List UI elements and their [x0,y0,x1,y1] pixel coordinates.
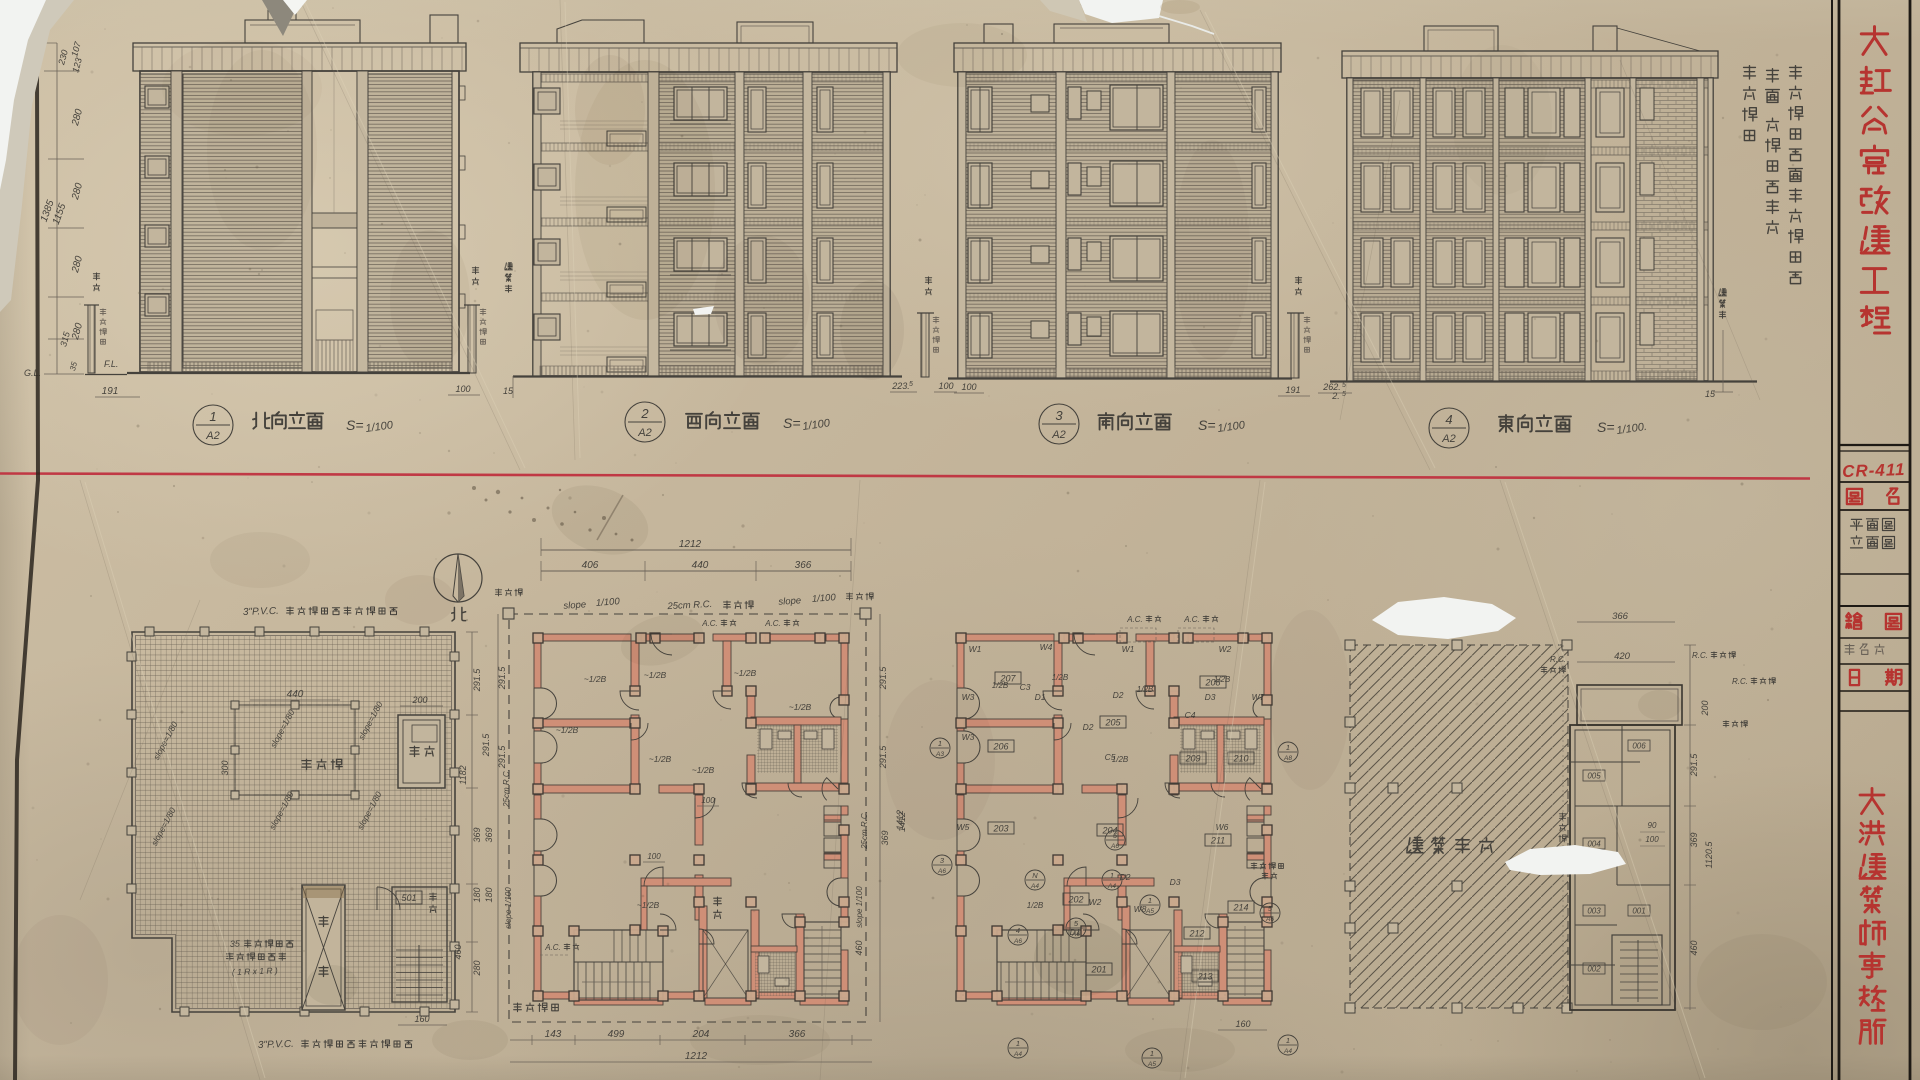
svg-text:003: 003 [1587,907,1601,916]
svg-text:369: 369 [484,827,494,842]
svg-text:A2: A2 [1051,429,1065,441]
svg-text:C4: C4 [1185,710,1196,720]
svg-text:315: 315 [58,330,72,348]
svg-text:A6: A6 [1265,916,1274,923]
svg-text:160: 160 [414,1014,429,1024]
svg-text:CR-411: CR-411 [1842,460,1906,481]
svg-text:35: 35 [230,938,242,949]
svg-text:W6: W6 [1216,822,1229,832]
svg-text:100: 100 [938,381,953,391]
svg-text:100: 100 [455,384,470,394]
svg-text:420: 420 [1614,651,1631,662]
svg-text:002: 002 [1587,965,1601,974]
svg-text:D3: D3 [1205,692,1216,702]
svg-text:369: 369 [1689,832,1699,847]
svg-text:160: 160 [1235,1019,1250,1029]
svg-text:1/2B: 1/2B [1027,901,1044,910]
svg-text:25cm R.C.: 25cm R.C. [502,769,511,808]
svg-text:1/2B: 1/2B [992,681,1009,690]
svg-text:214: 214 [1232,903,1248,913]
svg-text:N: N [1032,871,1038,880]
svg-text:A.C.: A.C. [764,619,781,628]
svg-text:406: 406 [582,560,599,571]
svg-text:D3: D3 [1170,877,1181,887]
svg-text:~1/2B: ~1/2B [649,754,672,764]
svg-text:006: 006 [1632,742,1646,751]
svg-text:210: 210 [1232,754,1248,764]
svg-text:90: 90 [1648,821,1657,830]
svg-text:4: 4 [1016,926,1020,935]
svg-text:499: 499 [608,1029,625,1040]
svg-text:3: 3 [1055,408,1063,423]
svg-text:440: 440 [287,689,304,700]
svg-text:A6: A6 [937,868,946,875]
svg-text:A4: A4 [1283,1048,1292,1055]
svg-text:1212: 1212 [679,539,702,550]
svg-text:004: 004 [1587,840,1601,849]
svg-text:S=: S= [1597,419,1615,435]
svg-text:~1/2B: ~1/2B [556,725,579,735]
svg-text:3: 3 [940,856,945,865]
svg-text:W7: W7 [1252,692,1265,702]
svg-text:~1/2B: ~1/2B [644,670,667,680]
svg-text:291.5: 291.5 [1689,753,1699,778]
svg-text:100: 100 [961,382,976,392]
svg-text:291.5: 291.5 [497,666,507,691]
svg-text:5: 5 [909,381,913,388]
svg-text:200: 200 [1700,700,1710,716]
svg-text:280: 280 [472,960,482,976]
svg-text:291.5: 291.5 [497,745,507,770]
svg-text:S=: S= [346,417,364,433]
svg-text:~1/2B: ~1/2B [692,765,715,775]
svg-text:1/2B: 1/2B [1214,675,1231,684]
svg-text:W4: W4 [1040,642,1053,652]
svg-text:A2: A2 [1441,433,1455,445]
svg-text:A4: A4 [1030,883,1039,890]
svg-text:A4: A4 [1107,883,1116,890]
svg-text:1120.5: 1120.5 [1704,841,1714,869]
svg-text:230: 230 [56,49,70,67]
svg-text:203: 203 [992,824,1008,834]
svg-text:1: 1 [209,409,216,424]
svg-text:4: 4 [1445,412,1452,427]
svg-text:15: 15 [503,386,514,396]
svg-text:280: 280 [70,107,85,127]
svg-text:S=: S= [1198,417,1216,433]
svg-text:D1: D1 [1035,692,1046,702]
svg-text:291.5: 291.5 [481,733,491,758]
svg-text:1/100: 1/100 [1217,419,1247,435]
svg-text:005: 005 [1587,772,1601,781]
svg-text:A.C.: A.C. [701,619,718,628]
svg-text:S=: S= [783,415,801,431]
svg-text:A.C.: A.C. [1126,615,1143,624]
svg-text:~1/2B: ~1/2B [789,702,812,712]
svg-text:1: 1 [1016,1039,1020,1048]
svg-text:A2: A2 [637,427,651,439]
svg-text:A4: A4 [1013,1051,1022,1058]
svg-text:slope: slope [778,595,801,608]
svg-text:15: 15 [1705,389,1716,399]
svg-text:209: 209 [1184,754,1200,764]
svg-text:123: 123 [70,57,84,74]
svg-text:slope 1/100: slope 1/100 [855,886,864,928]
svg-text:223.: 223. [891,381,910,391]
svg-text:291.5: 291.5 [472,668,482,693]
svg-text:366: 366 [795,560,812,571]
svg-text:1/100: 1/100 [596,596,621,609]
svg-text:R.C.: R.C. [1692,651,1708,660]
svg-text:280: 280 [70,181,85,201]
svg-text:W1: W1 [969,644,982,654]
svg-text:A.C.: A.C. [544,943,561,952]
svg-text:1/100: 1/100 [365,419,395,435]
svg-text:1/2B: 1/2B [1112,755,1129,764]
svg-text:440: 440 [692,560,709,571]
svg-text:( 1 R x 1 R ): ( 1 R x 1 R ) [232,965,278,977]
svg-text:1/2B: 1/2B [1052,673,1069,682]
svg-text:107: 107 [69,40,83,58]
svg-text:A6: A6 [1013,938,1022,945]
svg-text:slope 1/100: slope 1/100 [504,887,513,929]
svg-text:369: 369 [472,827,482,842]
svg-text:1182: 1182 [458,765,468,784]
svg-text:1/100.: 1/100. [1616,421,1648,437]
svg-text:25cm R.C.: 25cm R.C. [666,599,712,612]
svg-text:205: 205 [1104,718,1121,728]
svg-text:460: 460 [453,944,463,959]
svg-text:A5: A5 [1145,908,1154,915]
svg-text:212: 212 [1188,929,1204,939]
svg-text:1/100: 1/100 [802,417,832,433]
svg-text:280: 280 [70,254,85,274]
svg-text:D2: D2 [1113,690,1124,700]
svg-text:~1/2B: ~1/2B [584,674,607,684]
svg-text:460: 460 [1689,940,1699,955]
svg-text:1: 1 [1286,1036,1290,1045]
svg-text:2: 2 [640,406,649,421]
svg-text:100: 100 [701,796,715,805]
svg-text:191: 191 [102,386,119,397]
svg-text:3"P.V.C.: 3"P.V.C. [258,1039,294,1051]
svg-text:W2: W2 [1219,644,1232,654]
svg-text:3"P.V.C.: 3"P.V.C. [243,606,279,618]
svg-text:180: 180 [472,887,482,902]
svg-text:C3: C3 [1020,682,1031,692]
svg-text:191: 191 [1285,385,1300,395]
svg-text:1: 1 [1148,896,1152,905]
svg-text:slope: slope [563,599,586,612]
svg-text:W1: W1 [1122,644,1135,654]
svg-text:R.C.: R.C. [1732,677,1748,686]
svg-text:F.L.: F.L. [104,359,118,369]
svg-text:460: 460 [854,940,864,955]
svg-text:300: 300 [220,760,230,775]
svg-text:35: 35 [68,360,79,371]
svg-text:~1/2B: ~1/2B [734,668,757,678]
svg-text:A6: A6 [1110,843,1119,850]
svg-text:501: 501 [401,893,416,903]
svg-text:1/2B: 1/2B [1137,685,1154,694]
svg-text:100: 100 [1645,835,1659,844]
svg-text:180: 180 [484,887,494,902]
svg-text:A2: A2 [205,430,219,442]
svg-text:206: 206 [992,742,1008,752]
svg-text:100: 100 [647,852,661,861]
svg-text:5: 5 [1342,382,1346,389]
svg-text:291.5: 291.5 [878,666,888,691]
svg-text:1: 1 [1110,871,1114,880]
svg-text:366: 366 [1612,611,1629,622]
svg-text:W2: W2 [1089,897,1102,907]
svg-text:200: 200 [411,695,427,705]
svg-text:202: 202 [1067,895,1083,905]
svg-text:~1/2B: ~1/2B [637,900,660,910]
svg-text:25cm R.C.: 25cm R.C. [860,811,869,850]
svg-text:D2: D2 [1083,722,1094,732]
svg-text:1/100: 1/100 [812,592,837,605]
svg-text:143: 143 [545,1029,562,1040]
svg-text:2.: 2. [1331,391,1340,401]
svg-text:A.C.: A.C. [1183,615,1200,624]
svg-text:369: 369 [880,830,890,845]
